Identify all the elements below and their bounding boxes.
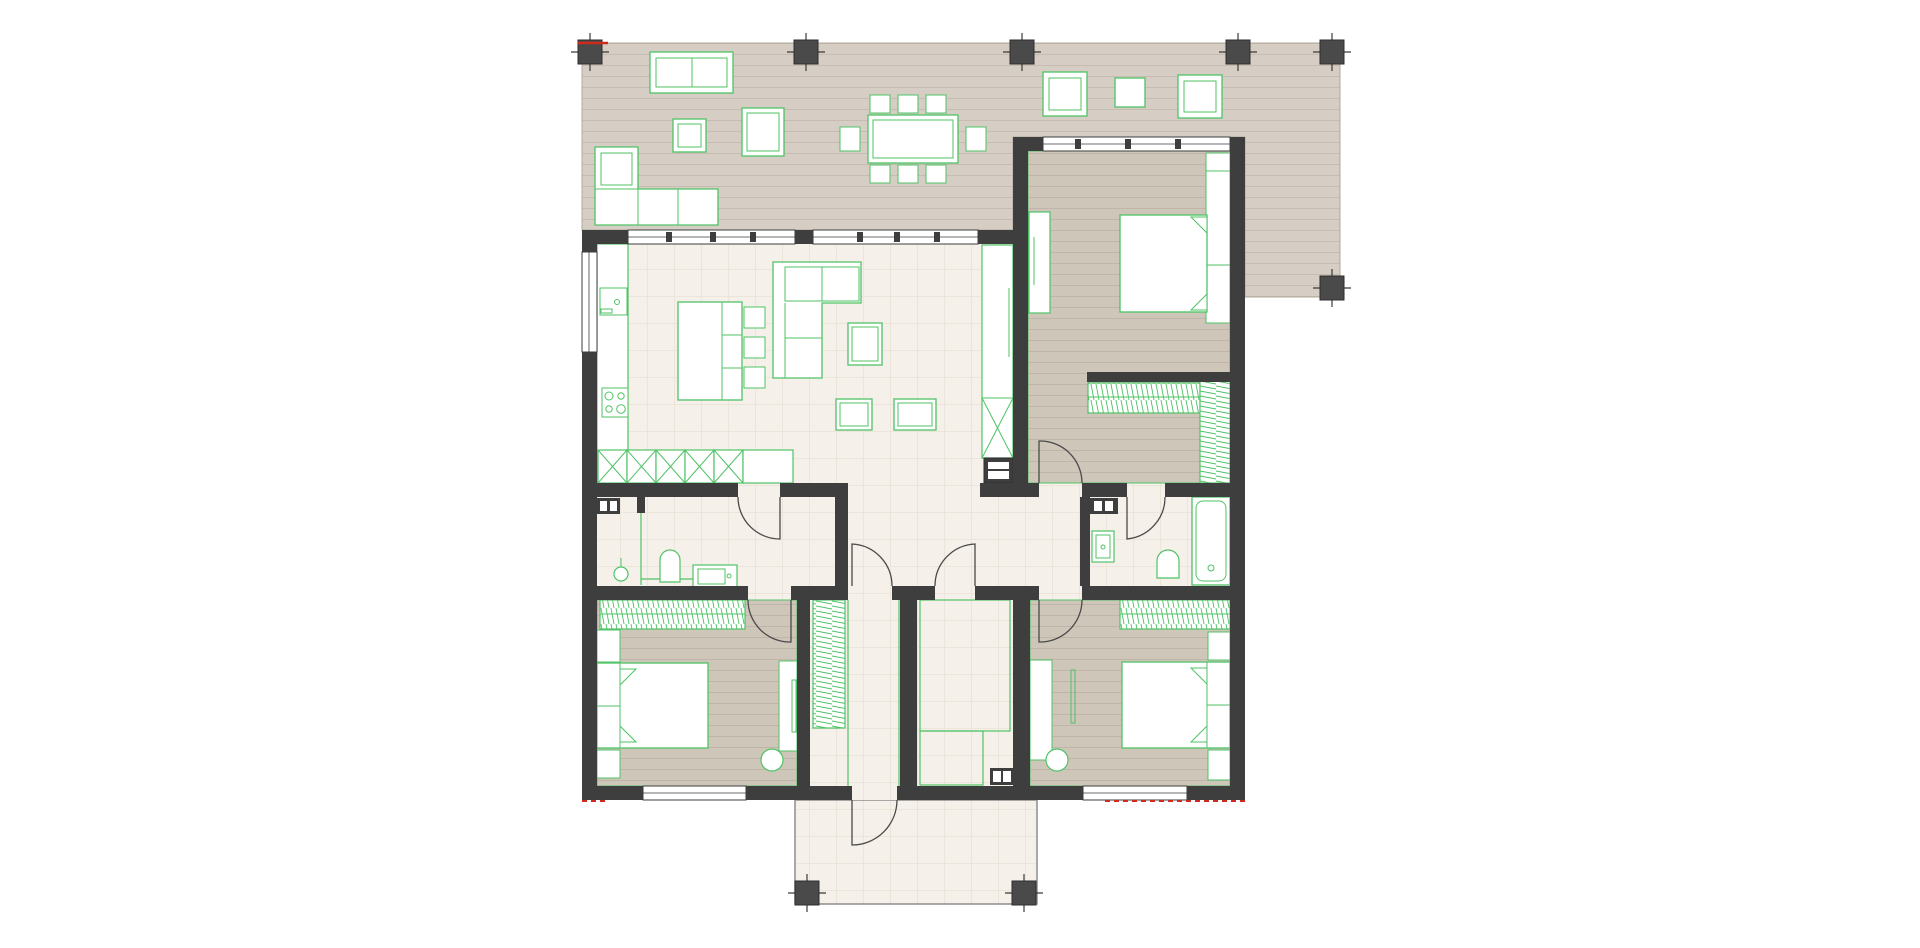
bar-stool	[744, 307, 765, 328]
wall-mid-lower-1	[597, 586, 748, 600]
living-pouf-1	[836, 399, 872, 430]
kitchen-base-cabinet	[685, 450, 714, 483]
master-headboard-strip	[1206, 153, 1230, 323]
wall-wc-right	[835, 497, 848, 586]
bedroom-right-nightstand	[1208, 750, 1230, 780]
closet-wardrobe	[813, 600, 845, 728]
deck-dining-chair	[966, 127, 986, 151]
wall-left-top	[582, 230, 597, 252]
wall-mid-upper-1	[597, 483, 738, 497]
deck-dining-chair	[898, 165, 918, 183]
bath-tub	[1192, 497, 1230, 585]
wall-mid-lower-5	[1082, 586, 1230, 600]
kitchen-base-cabinet	[714, 450, 743, 483]
window-tick	[857, 232, 863, 242]
kitchen-counter	[597, 244, 628, 483]
living-coffee-table	[848, 323, 882, 365]
kitchen-sink	[600, 288, 627, 315]
deck-dining-chair	[926, 165, 946, 183]
wall-top-corner-right	[978, 230, 1013, 244]
wall-mid-upper-2	[780, 483, 848, 497]
wc-toilet	[660, 550, 680, 582]
wall-bottom-2	[746, 786, 852, 800]
deck-cushion-2	[1115, 78, 1145, 107]
vent-slot	[1003, 771, 1011, 782]
deck-dining-chair	[840, 127, 860, 151]
bedroom-left-nightstand	[597, 750, 620, 778]
bar-stool	[744, 337, 765, 358]
wall-left-main	[582, 352, 597, 800]
window-tick	[1175, 139, 1181, 149]
wall-mid-upper-3	[980, 483, 1039, 497]
wall-master-left	[1013, 151, 1028, 497]
deck-dining-chair	[898, 95, 918, 113]
wall-bottom-1	[582, 786, 643, 800]
wall-master-top-corner	[1013, 137, 1043, 151]
kitchen-island	[678, 302, 742, 400]
floor-plan-canvas	[0, 0, 1920, 948]
master-dresser	[1029, 212, 1050, 313]
kitchen-base-cabinet	[598, 450, 627, 483]
master-wardrobe-long	[1088, 383, 1200, 413]
bedroom-right-nightstand	[1208, 632, 1230, 660]
window-kitchen-left	[582, 252, 597, 352]
window-tick	[894, 232, 900, 242]
wall-mid-upper-4	[1082, 483, 1127, 497]
wall-mid-upper-5	[1165, 483, 1230, 497]
window-tick	[1125, 139, 1131, 149]
window-tick	[710, 232, 716, 242]
wall-tech-bedroom	[1013, 600, 1030, 786]
vent-slot	[1094, 501, 1102, 511]
vent-slot	[993, 771, 1001, 782]
vent-slot	[610, 501, 617, 511]
bedroom-left-pouf	[761, 749, 783, 771]
deck-table	[742, 108, 784, 156]
wall-wc-stub	[637, 497, 645, 513]
deck-dining-chair	[870, 165, 890, 183]
porch-floor	[795, 800, 1037, 904]
wc-pedestal	[614, 567, 628, 581]
kitchen-base-cabinet	[656, 450, 685, 483]
window-tick	[666, 232, 672, 242]
wall-mid-lower-2	[791, 586, 848, 600]
window-tick	[934, 232, 940, 242]
bedroom-left-nightstand	[597, 630, 620, 662]
living-pouf-2	[894, 399, 936, 430]
wall-right	[1230, 137, 1245, 800]
living-appliance-slot	[988, 471, 1009, 479]
deck-cushion-1	[1043, 72, 1087, 116]
window-tick	[1075, 139, 1081, 149]
bedroom-right-pouf	[1046, 749, 1068, 771]
wall-bottom-3	[897, 786, 1083, 800]
master-bed	[1120, 215, 1207, 312]
vent-slot	[600, 501, 607, 511]
deck-dining-chair	[926, 95, 946, 113]
bedroom-left-dresser	[779, 661, 797, 751]
wall-top-pier	[795, 230, 813, 244]
window-tick	[750, 232, 756, 242]
bath-sink	[1092, 531, 1114, 562]
kitchen-base-cabinet	[627, 450, 656, 483]
living-tv-cabinet	[982, 245, 1013, 458]
kitchen-cabinet-end	[743, 450, 793, 483]
floor-plan	[0, 0, 1920, 948]
bar-stool	[744, 367, 765, 388]
wall-mid-lower-3	[892, 586, 935, 600]
wall-bedroom-closet	[797, 600, 810, 786]
master-wardrobe-side	[1200, 380, 1230, 483]
bedroom-right-dresser	[1030, 660, 1052, 760]
deck-dining-table	[868, 115, 958, 163]
deck-dining-chair	[870, 95, 890, 113]
vent-slot	[1105, 501, 1113, 511]
living-appliance-slot	[988, 462, 1009, 469]
living-appliance	[984, 458, 1013, 483]
wall-mid-lower-4	[975, 586, 1039, 600]
wall-bath-left	[1080, 497, 1090, 586]
wall-corridor-tech	[900, 600, 917, 786]
bath-toilet	[1157, 550, 1179, 578]
wall-master-nook-stub	[1087, 372, 1230, 382]
